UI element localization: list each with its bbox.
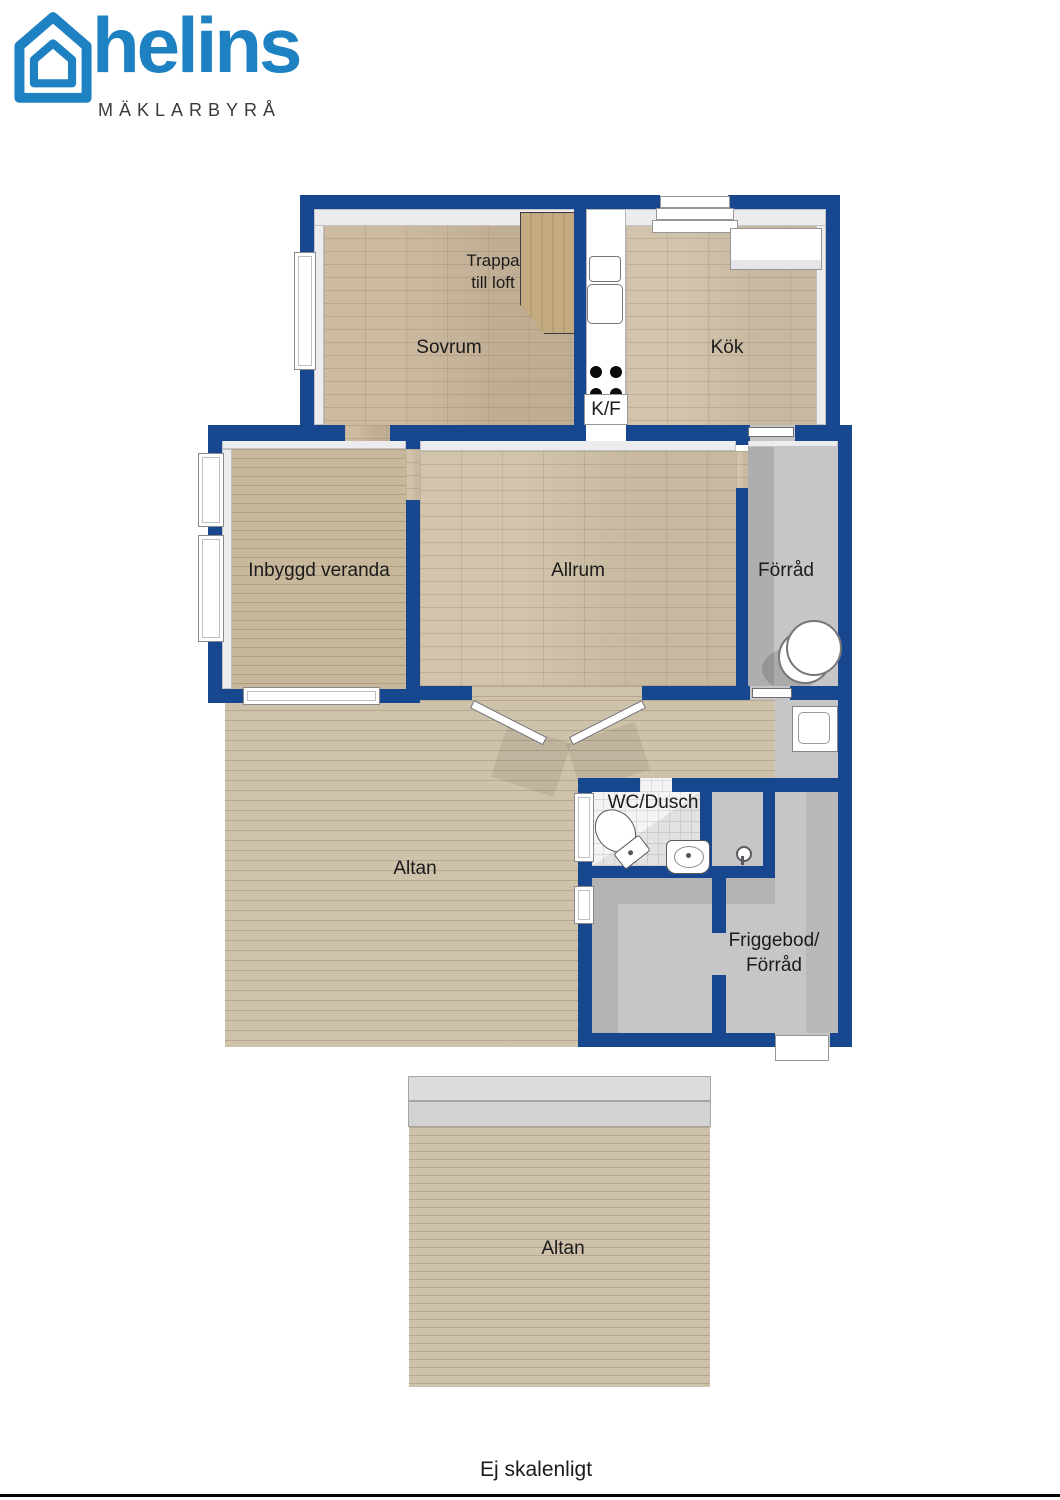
wall-segment: [578, 1033, 775, 1047]
door-opening: [406, 449, 420, 500]
door-opening: [640, 778, 672, 792]
brand-tagline: MÄKLARBYRÅ: [98, 100, 281, 121]
room-label-veranda: Inbyggd veranda: [239, 560, 399, 582]
room-label-wc: WC/Dusch: [593, 792, 713, 814]
wall-segment: [728, 195, 840, 209]
wall-segment: [578, 860, 592, 888]
faucet-dot: [686, 853, 691, 858]
shower-icon: [741, 856, 744, 865]
door-leaf: [752, 688, 792, 698]
room-label-kok: Kök: [697, 337, 757, 359]
stove-burners-icon: [610, 366, 622, 378]
entry-step: [775, 1035, 829, 1061]
room-label-friggebod-line1: Friggebod/: [714, 930, 834, 952]
wall-segment: [763, 792, 775, 866]
wall-segment: [626, 425, 750, 441]
wall-segment: [736, 488, 748, 686]
wall-segment: [712, 878, 726, 933]
floor-shadow: [592, 878, 775, 904]
french-door-threshold: [472, 686, 642, 700]
kitchen-passage: [586, 425, 626, 441]
stove-burners-icon: [590, 366, 602, 378]
wall-segment: [574, 209, 586, 425]
door-leaf: [748, 427, 794, 437]
wall-segment: [838, 425, 852, 1047]
room-label-allrum: Allrum: [518, 560, 638, 582]
shower-icon: [736, 846, 752, 862]
window: [198, 535, 224, 642]
altan-lower-step: [408, 1101, 711, 1127]
kitchen-sink-icon: [589, 256, 621, 282]
kitchen-cabinet: [730, 228, 822, 270]
door-opening: [736, 451, 748, 488]
wall-segment: [208, 425, 222, 455]
altan-lower-step: [408, 1076, 711, 1101]
floor-shadow: [806, 792, 838, 1033]
floor-shadow: [592, 878, 618, 1033]
room-label-altan-lower: Altan: [503, 1238, 623, 1260]
entrance-steps: [660, 196, 730, 208]
wall-segment: [826, 195, 840, 437]
window: [243, 687, 380, 705]
wall-segment: [420, 686, 472, 700]
wall-segment: [712, 975, 726, 1033]
label-kf: K/F: [584, 399, 628, 421]
room-label-altan-upper: Altan: [355, 858, 475, 880]
wall-segment: [406, 500, 420, 703]
wall-segment: [642, 686, 750, 700]
wall-segment: [208, 689, 245, 703]
house-outline-icon: [14, 10, 92, 104]
window: [198, 453, 224, 527]
entrance-steps: [652, 220, 738, 233]
entrance-steps: [656, 208, 734, 220]
wall-segment: [672, 778, 838, 792]
room-label-trappa-line1: Trappa: [433, 251, 553, 271]
wall-segment: [208, 425, 345, 441]
bottom-border: [0, 1494, 1060, 1497]
wall-segment: [578, 922, 592, 1047]
wall-segment: [406, 439, 420, 449]
wall-segment: [300, 195, 660, 209]
wall-segment: [736, 439, 748, 445]
water-heater-icon: [786, 620, 842, 676]
kitchen-sink-icon: [587, 284, 623, 324]
wall-segment: [300, 195, 314, 252]
brand-name: helins: [92, 0, 299, 91]
room-label-trappa-line2: till loft: [433, 273, 553, 293]
window: [294, 252, 316, 370]
room-label-friggebod-line2: Förråd: [714, 955, 834, 977]
window: [574, 886, 594, 924]
footer-note: Ej skalenligt: [430, 1458, 642, 1482]
wall-segment: [830, 1033, 852, 1047]
room-label-sovrum: Sovrum: [389, 337, 509, 359]
door-opening: [345, 425, 390, 441]
floorplan-page: helins MÄKLARBYRÅ: [0, 0, 1060, 1500]
room-label-forrad: Förråd: [746, 560, 826, 582]
outdoor-sink-icon: [798, 712, 830, 744]
